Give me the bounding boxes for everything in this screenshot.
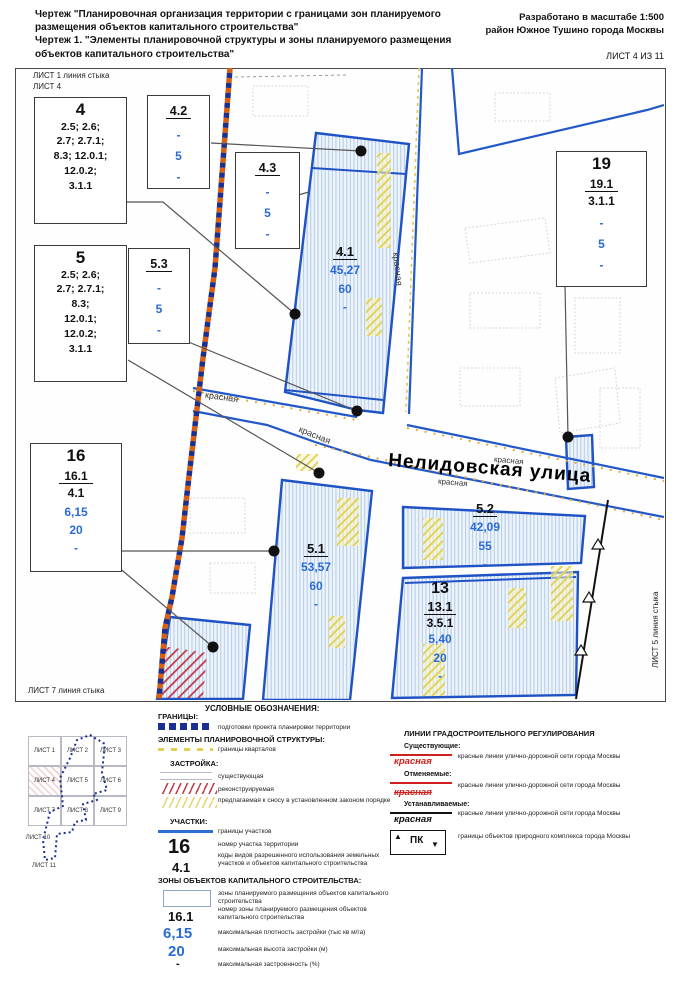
callout-box-4-3: 4.3 - 5 - xyxy=(235,152,300,249)
demolition-swatch xyxy=(162,797,217,808)
box4-line: 3.1.1 xyxy=(35,179,126,194)
box16-code: 4.1 xyxy=(31,486,121,500)
zone13-height: 20 xyxy=(398,649,482,668)
callout-box-5: 5 2.5; 2.6; 2.7; 2.7.1; 8.3; 12.0.1; 12.… xyxy=(34,245,127,382)
zone13-density: 5,40 xyxy=(398,630,482,649)
box16-height: 20 xyxy=(31,524,121,536)
callout-box-16: 16 16.1 4.1 6,15 20 - xyxy=(30,443,122,572)
drawing-title: Чертеж "Планировочная организация террит… xyxy=(35,8,465,61)
zone51-dash: - xyxy=(283,595,349,614)
zone41-dash: - xyxy=(312,298,378,317)
legend-buildings-header: ЗАСТРОЙКА: xyxy=(170,759,218,768)
box4-line: 12.0.2; xyxy=(35,164,126,179)
zone13-title: 13 xyxy=(398,580,482,598)
pk-code: ПК xyxy=(410,835,423,846)
zone41-id: 4.1 xyxy=(333,244,357,260)
zone41-density: 45,27 xyxy=(312,261,378,280)
zone-label-13: 13 13.1 3.5.1 5,40 20 - xyxy=(398,580,482,686)
box4-line: 2.5; 2.6; xyxy=(35,120,126,135)
label-sheet5-seam: ЛИСТ 5 линия стыка xyxy=(651,592,660,668)
box19-code: 3.1.1 xyxy=(557,194,646,208)
zone-label-5-1: 5.1 53,57 60 - xyxy=(283,540,349,614)
title-line-3: Чертеж 1. "Элементы планировочной структ… xyxy=(35,34,465,47)
box16-zone: 16.1 xyxy=(59,469,92,484)
district-note: район Южное Тушино города Москвы xyxy=(440,25,664,38)
box53-dash2: - xyxy=(129,324,189,336)
existing-red-line-word: красная xyxy=(394,756,432,767)
demolition-label: предлагаемая к сносу в установленном зак… xyxy=(218,797,398,805)
box5-line: 2.5; 2.6; xyxy=(35,268,126,283)
box19-title: 19 xyxy=(557,154,646,174)
zone13-id: 13.1 xyxy=(424,599,455,615)
coverage-sample: - xyxy=(176,958,180,970)
existing-red-line-label: красные линии улично-дорожной сети город… xyxy=(458,753,658,761)
title-line-4: объектов капитального строительства" xyxy=(35,48,465,61)
boundary-swatch xyxy=(158,723,213,730)
zone51-density: 53,57 xyxy=(283,558,349,577)
cancelled-red-line-label: красные линии улично-дорожной сети город… xyxy=(458,782,658,790)
sheet1-stitch-line xyxy=(235,75,347,77)
box43-dash1: - xyxy=(236,186,299,198)
callout-box-19: 19 19.1 3.1.1 - 5 - xyxy=(556,151,647,287)
established-line-word: красная xyxy=(394,814,432,825)
pk-legend-box: ▲ ПК ▼ xyxy=(390,830,446,855)
box42-dash1: - xyxy=(148,129,209,141)
box4-line: 2.7; 2.7.1; xyxy=(35,134,126,149)
box5-line: 2.7; 2.7.1; xyxy=(35,282,126,297)
legend-parcels-header: УЧАСТКИ: xyxy=(170,817,207,826)
box16-density: 6,15 xyxy=(31,506,121,518)
plan-sheet: Чертеж "Планировочная организация террит… xyxy=(0,0,680,992)
legend-structure-header: ЭЛЕМЕНТЫ ПЛАНИРОВОЧНОЙ СТРУКТУРЫ: xyxy=(158,735,325,744)
box4-line: 8.3; 12.0.1; xyxy=(35,149,126,164)
reconstruction-swatch xyxy=(162,783,217,794)
cancelled-red-line-word: красная xyxy=(394,787,432,798)
established-line-label: красные линии улично-дорожной сети город… xyxy=(458,810,658,818)
title-line-1: Чертеж "Планировочная организация террит… xyxy=(35,8,465,21)
legend-borders-header: ГРАНИЦЫ: xyxy=(158,712,198,721)
road-north-east xyxy=(452,68,664,154)
box43-height: 5 xyxy=(236,207,299,219)
zone-swatch-label: зоны планируемого размещения объектов ка… xyxy=(218,890,398,907)
box53-title: 5.3 xyxy=(146,257,171,272)
reconstruction-label: реконструируемая xyxy=(218,786,393,794)
legend-zones-header: ЗОНЫ ОБЪЕКТОВ КАПИТАЛЬНОГО СТРОИТЕЛЬСТВА… xyxy=(158,876,361,885)
zone-swatch xyxy=(163,890,211,907)
box43-dash2: - xyxy=(236,228,299,240)
box53-height: 5 xyxy=(129,303,189,315)
existing-label: существующая xyxy=(218,773,393,781)
density-label: максимальная плотность застройки (тыс кв… xyxy=(218,929,398,937)
box19-dash2: - xyxy=(557,259,646,271)
box5-title: 5 xyxy=(35,248,126,268)
density-sample: 6,15 xyxy=(163,925,192,942)
zone-label-4-1: 4.1 45,27 60 - xyxy=(312,243,378,317)
cancelled-lines-header: Отменяемые: xyxy=(404,771,451,778)
zone-number-label: номер зоны планируемого размещения объек… xyxy=(218,906,398,923)
zone41-height: 60 xyxy=(312,280,378,299)
box16-title: 16 xyxy=(31,446,121,466)
use-codes-label: коды видов разрешенного использования зе… xyxy=(218,852,398,869)
pk-triangle-down-icon: ▼ xyxy=(431,840,439,849)
box5-line: 12.0.1; xyxy=(35,312,126,327)
box5-line: 3.1.1 xyxy=(35,342,126,357)
zone52-dash: - xyxy=(452,555,518,574)
regulation-lines-header: ЛИНИИ ГРАДОСТРОИТЕЛЬНОГО РЕГУЛИРОВАНИЯ xyxy=(404,729,664,738)
box16-dash: - xyxy=(31,542,121,554)
box19-zone: 19.1 xyxy=(585,177,618,192)
street-vertical-right-edge xyxy=(409,68,422,414)
box43-title: 4.3 xyxy=(255,161,280,176)
existing-lines-header: Существующие: xyxy=(404,743,460,750)
height-label: максимальная высота застройки (м) xyxy=(218,946,398,954)
legend-title: УСЛОВНЫЕ ОБОЗНАЧЕНИЯ: xyxy=(205,704,319,713)
callout-box-4-2: 4.2 - 5 - xyxy=(147,95,210,189)
sheet-note: ЛИСТ 4 ИЗ 11 xyxy=(440,50,664,62)
established-lines-header: Устанавливаемые: xyxy=(404,801,470,808)
label-sheet4: ЛИСТ 4 xyxy=(33,82,61,91)
callout-box-5-3: 5.3 - 5 - xyxy=(128,248,190,344)
box53-dash1: - xyxy=(129,282,189,294)
use-codes-sample: 4.1 xyxy=(172,860,190,875)
quarter-swatch xyxy=(158,748,213,751)
box42-height: 5 xyxy=(148,150,209,162)
zone-number-sample: 16.1 xyxy=(168,909,193,924)
zone52-id: 5.2 xyxy=(473,501,497,517)
zone13-code: 3.5.1 xyxy=(398,616,482,630)
zone51-id: 5.1 xyxy=(304,541,328,557)
coverage-label: максимальная застроенность (%) xyxy=(218,961,398,969)
box5-line: 8.3; xyxy=(35,297,126,312)
parcel-number-sample: 16 xyxy=(168,836,190,859)
quarter-boundary-dashes xyxy=(406,68,419,412)
label-sheet1-seam: ЛИСТ 1 линия стыка xyxy=(33,71,109,80)
label-sheet7-seam: ЛИСТ 7 линия стыка xyxy=(28,686,104,695)
box42-dash2: - xyxy=(148,171,209,183)
pk-label: границы объектов природного комплекса го… xyxy=(458,833,633,841)
zone13-dash: - xyxy=(398,667,482,686)
title-line-2: размещения объектов капитального строите… xyxy=(35,21,465,34)
parcel-number-label: номер участка территории xyxy=(218,841,393,849)
zone-label-5-2: 5.2 42,09 55 - xyxy=(452,500,518,574)
minimap-boundary-outline xyxy=(15,728,140,888)
parcel-border-label: границы участков xyxy=(218,828,393,836)
callout-box-4: 4 2.5; 2.6; 2.7; 2.7.1; 8.3; 12.0.1; 12.… xyxy=(34,97,127,224)
quarter-label: границы кварталов xyxy=(218,746,393,754)
zone52-density: 42,09 xyxy=(452,518,518,537)
pk-triangle-up-icon: ▲ xyxy=(394,832,402,841)
zone51-height: 60 xyxy=(283,577,349,596)
zone52-height: 55 xyxy=(452,537,518,556)
box4-title: 4 xyxy=(35,100,126,120)
box19-dash1: - xyxy=(557,217,646,229)
box19-height: 5 xyxy=(557,238,646,250)
parcel-border-swatch xyxy=(158,830,213,833)
box5-line: 12.0.2; xyxy=(35,327,126,342)
cancelled-red-line-swatch xyxy=(390,782,452,784)
box42-title: 4.2 xyxy=(166,104,191,119)
scale-note: Разработано в масштабе 1:500 xyxy=(440,12,664,25)
boundary-label: подготовки проекта планировки территории xyxy=(218,724,393,732)
header-right: Разработано в масштабе 1:500 район Южное… xyxy=(440,12,664,62)
existing-swatch xyxy=(160,772,212,780)
